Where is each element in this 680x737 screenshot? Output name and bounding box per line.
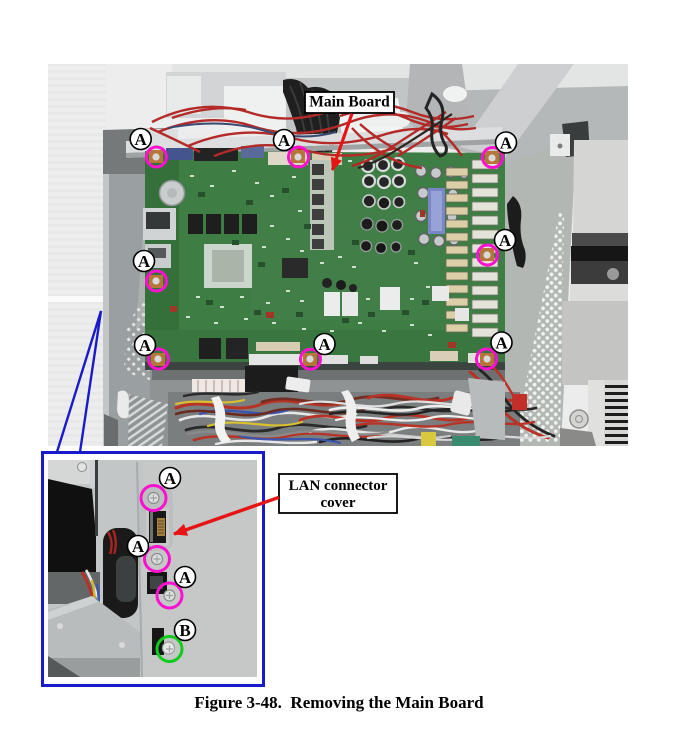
svg-text:A: A [164, 469, 177, 488]
svg-text:A: A [179, 568, 192, 587]
svg-text:A: A [132, 537, 145, 556]
svg-text:LAN connector: LAN connector [289, 478, 388, 494]
svg-text:A: A [318, 335, 331, 354]
svg-text:A: A [139, 336, 152, 355]
svg-text:A: A [500, 134, 513, 153]
svg-text:cover: cover [321, 495, 356, 511]
svg-text:Main Board: Main Board [309, 94, 390, 111]
svg-text:B: B [179, 621, 190, 640]
svg-text:A: A [499, 231, 512, 250]
svg-text:A: A [135, 130, 148, 149]
svg-text:Figure 3-48. Removing the Mai: Figure 3-48. Removing the Main Board [194, 693, 484, 712]
svg-text:A: A [495, 334, 508, 353]
svg-text:A: A [278, 131, 291, 150]
svg-text:A: A [138, 252, 151, 271]
